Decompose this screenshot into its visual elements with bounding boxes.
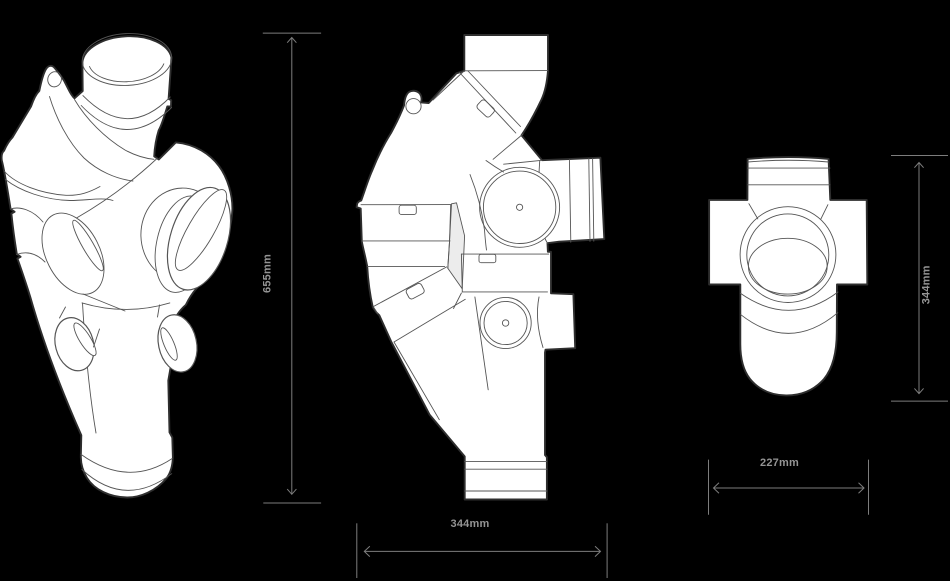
svg-text:227mm: 227mm (760, 457, 799, 469)
svg-text:344mm: 344mm (451, 518, 490, 530)
svg-text:344mm: 344mm (920, 265, 932, 304)
svg-text:655mm: 655mm (261, 254, 273, 293)
